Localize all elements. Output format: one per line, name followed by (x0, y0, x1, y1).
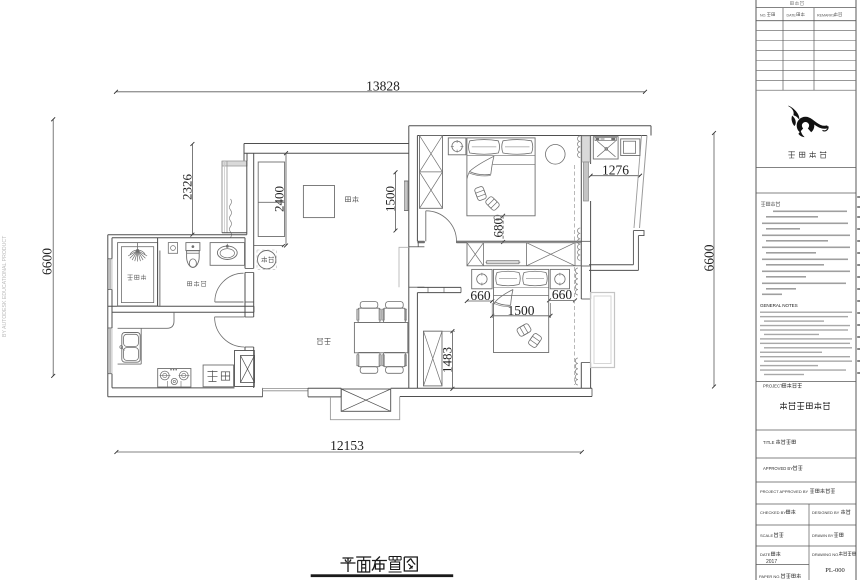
svg-text:SCALE: SCALE (760, 533, 773, 538)
svg-text:12153: 12153 (330, 438, 364, 453)
svg-text:NO.: NO. (760, 13, 766, 17)
svg-text:1500: 1500 (383, 186, 398, 212)
svg-text:2017: 2017 (766, 559, 777, 565)
svg-text:DESIGNED BY: DESIGNED BY (812, 510, 840, 515)
svg-text:DRAWN BY: DRAWN BY (812, 533, 834, 538)
svg-text:REMARKS: REMARKS (817, 13, 835, 17)
svg-text:APPROVED BY: APPROVED BY (763, 466, 793, 471)
svg-text:PROJECT: PROJECT (763, 384, 783, 389)
svg-text:13828: 13828 (366, 78, 400, 93)
svg-text:6600: 6600 (40, 248, 55, 275)
svg-text:PROJECT APPROVED BY: PROJECT APPROVED BY (760, 489, 808, 494)
svg-text:GENERAL NOTES: GENERAL NOTES (760, 303, 798, 308)
svg-text:1500: 1500 (508, 303, 535, 318)
svg-text:TITLE: TITLE (763, 440, 775, 445)
svg-text:680: 680 (491, 218, 506, 238)
svg-text:CHECKED BY: CHECKED BY (760, 510, 786, 515)
svg-text:6600: 6600 (702, 244, 717, 271)
svg-text:2326: 2326 (180, 174, 195, 201)
svg-text:660: 660 (470, 288, 491, 303)
svg-text:1276: 1276 (602, 163, 629, 178)
svg-text:BY AUTODESK EDUCATIONAL PRODUC: BY AUTODESK EDUCATIONAL PRODUCT (2, 235, 8, 337)
svg-text:DATE: DATE (760, 552, 771, 557)
svg-text:660: 660 (552, 287, 573, 302)
svg-text:DATE: DATE (787, 13, 797, 17)
svg-text:PL-000: PL-000 (825, 567, 845, 574)
svg-text:PAPER NO.: PAPER NO. (759, 574, 781, 579)
svg-text:DRAWING NO.: DRAWING NO. (812, 552, 839, 557)
